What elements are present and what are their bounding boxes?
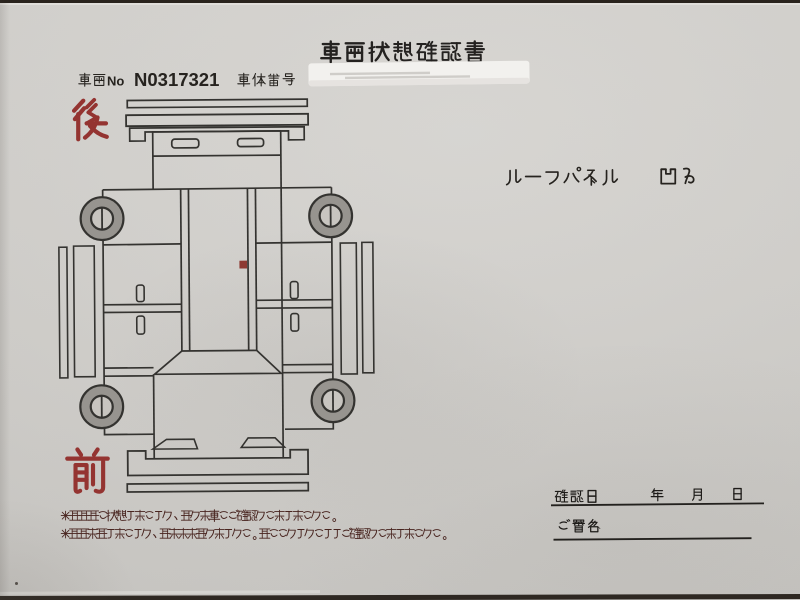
svg-text:N0317321: N0317321 xyxy=(134,69,219,90)
svg-text:No: No xyxy=(107,74,124,89)
